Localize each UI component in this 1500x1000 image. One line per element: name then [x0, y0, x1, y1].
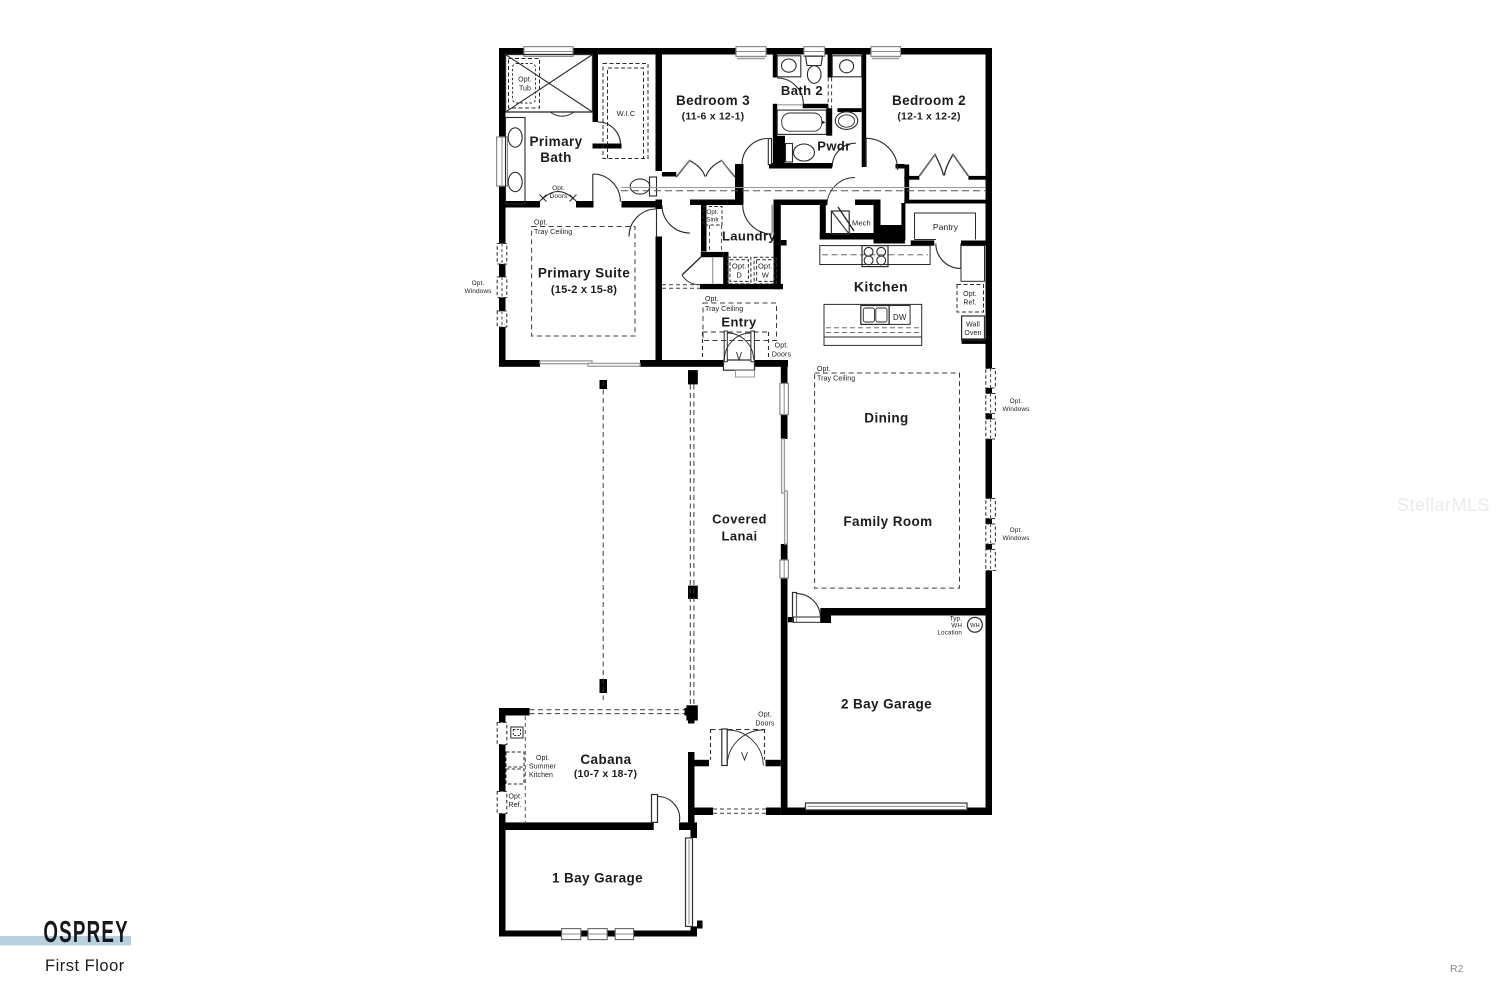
svg-text:Tub: Tub	[519, 86, 531, 93]
svg-text:D: D	[736, 271, 742, 280]
svg-text:WH: WH	[970, 623, 980, 629]
svg-text:Kitchen: Kitchen	[529, 772, 553, 779]
svg-text:Opt.: Opt.	[1010, 527, 1023, 534]
svg-text:Opt.: Opt.	[552, 185, 565, 192]
svg-text:Tray Ceiling: Tray Ceiling	[705, 306, 743, 313]
svg-text:Ref.: Ref.	[509, 802, 522, 809]
svg-text:Opt.: Opt.	[518, 77, 532, 84]
svg-text:Opt.: Opt.	[963, 291, 977, 298]
svg-text:OSPREY: OSPREY	[43, 915, 128, 949]
svg-text:Typ.: Typ.	[950, 616, 962, 623]
svg-text:Location: Location	[937, 630, 962, 637]
svg-text:Family Room: Family Room	[843, 514, 932, 529]
svg-text:Laundry: Laundry	[722, 229, 776, 244]
svg-text:Entry: Entry	[721, 315, 757, 330]
svg-text:StellarMLS: StellarMLS	[1397, 495, 1490, 515]
svg-text:R2: R2	[1450, 963, 1464, 975]
svg-text:1 Bay Garage: 1 Bay Garage	[552, 871, 643, 886]
svg-text:Opt.: Opt.	[1010, 398, 1023, 405]
svg-text:Opt.: Opt.	[705, 296, 719, 303]
svg-text:Primary Suite: Primary Suite	[538, 266, 630, 281]
svg-text:W.I.C: W.I.C	[617, 109, 636, 118]
svg-text:Lanai: Lanai	[722, 529, 758, 544]
svg-text:Windows: Windows	[1002, 406, 1030, 413]
svg-text:Windows: Windows	[464, 288, 492, 295]
svg-text:Cabana: Cabana	[580, 752, 631, 767]
svg-text:Kitchen: Kitchen	[854, 279, 908, 295]
svg-text:2 Bay Garage: 2 Bay Garage	[841, 697, 932, 712]
svg-text:Opt.: Opt.	[472, 280, 485, 287]
svg-text:Ref.: Ref.	[963, 300, 976, 307]
svg-text:Summer: Summer	[529, 764, 557, 771]
svg-text:Wall: Wall	[966, 322, 980, 329]
svg-text:Opt.: Opt.	[775, 343, 789, 350]
svg-text:Tray Ceiling: Tray Ceiling	[534, 229, 572, 236]
svg-text:Primary: Primary	[529, 134, 582, 149]
svg-text:Bath: Bath	[540, 150, 572, 165]
svg-text:First Floor: First Floor	[45, 957, 125, 975]
svg-text:Mech: Mech	[852, 219, 871, 228]
svg-text:Covered: Covered	[712, 512, 767, 527]
svg-text:Opt.: Opt.	[536, 755, 550, 762]
svg-text:(11-6 x 12-1): (11-6 x 12-1)	[682, 111, 745, 123]
svg-text:Windows: Windows	[1002, 535, 1030, 542]
svg-text:Opt.: Opt.	[706, 209, 718, 216]
svg-text:Opt.: Opt.	[758, 262, 773, 271]
svg-text:Bedroom 3: Bedroom 3	[676, 93, 750, 108]
svg-text:Oven: Oven	[964, 330, 981, 337]
svg-text:Sink: Sink	[706, 217, 719, 224]
svg-text:Opt.: Opt.	[509, 794, 523, 801]
svg-text:Dining: Dining	[864, 411, 908, 426]
svg-text:Doors: Doors	[550, 193, 568, 200]
svg-text:Doors: Doors	[755, 721, 775, 728]
svg-text:Bedroom 2: Bedroom 2	[892, 93, 966, 108]
svg-text:Opt.: Opt.	[534, 220, 548, 227]
svg-text:Opt.: Opt.	[732, 262, 747, 271]
svg-text:DW: DW	[893, 313, 907, 322]
svg-text:Tray Ceiling: Tray Ceiling	[817, 375, 855, 382]
svg-text:Pantry: Pantry	[933, 222, 959, 232]
svg-text:(10-7 x 18-7): (10-7 x 18-7)	[574, 768, 637, 780]
svg-text:Opt.: Opt.	[758, 712, 772, 719]
svg-text:Doors: Doors	[772, 352, 792, 359]
svg-text:(15-2 x 15-8): (15-2 x 15-8)	[551, 284, 617, 296]
svg-text:WH: WH	[951, 623, 962, 630]
svg-text:Bath 2: Bath 2	[781, 83, 823, 98]
svg-text:W: W	[762, 271, 770, 280]
svg-text:Pwdr: Pwdr	[817, 139, 850, 154]
svg-text:(12-1 x 12-2): (12-1 x 12-2)	[897, 111, 960, 123]
svg-text:Opt.: Opt.	[817, 366, 831, 373]
